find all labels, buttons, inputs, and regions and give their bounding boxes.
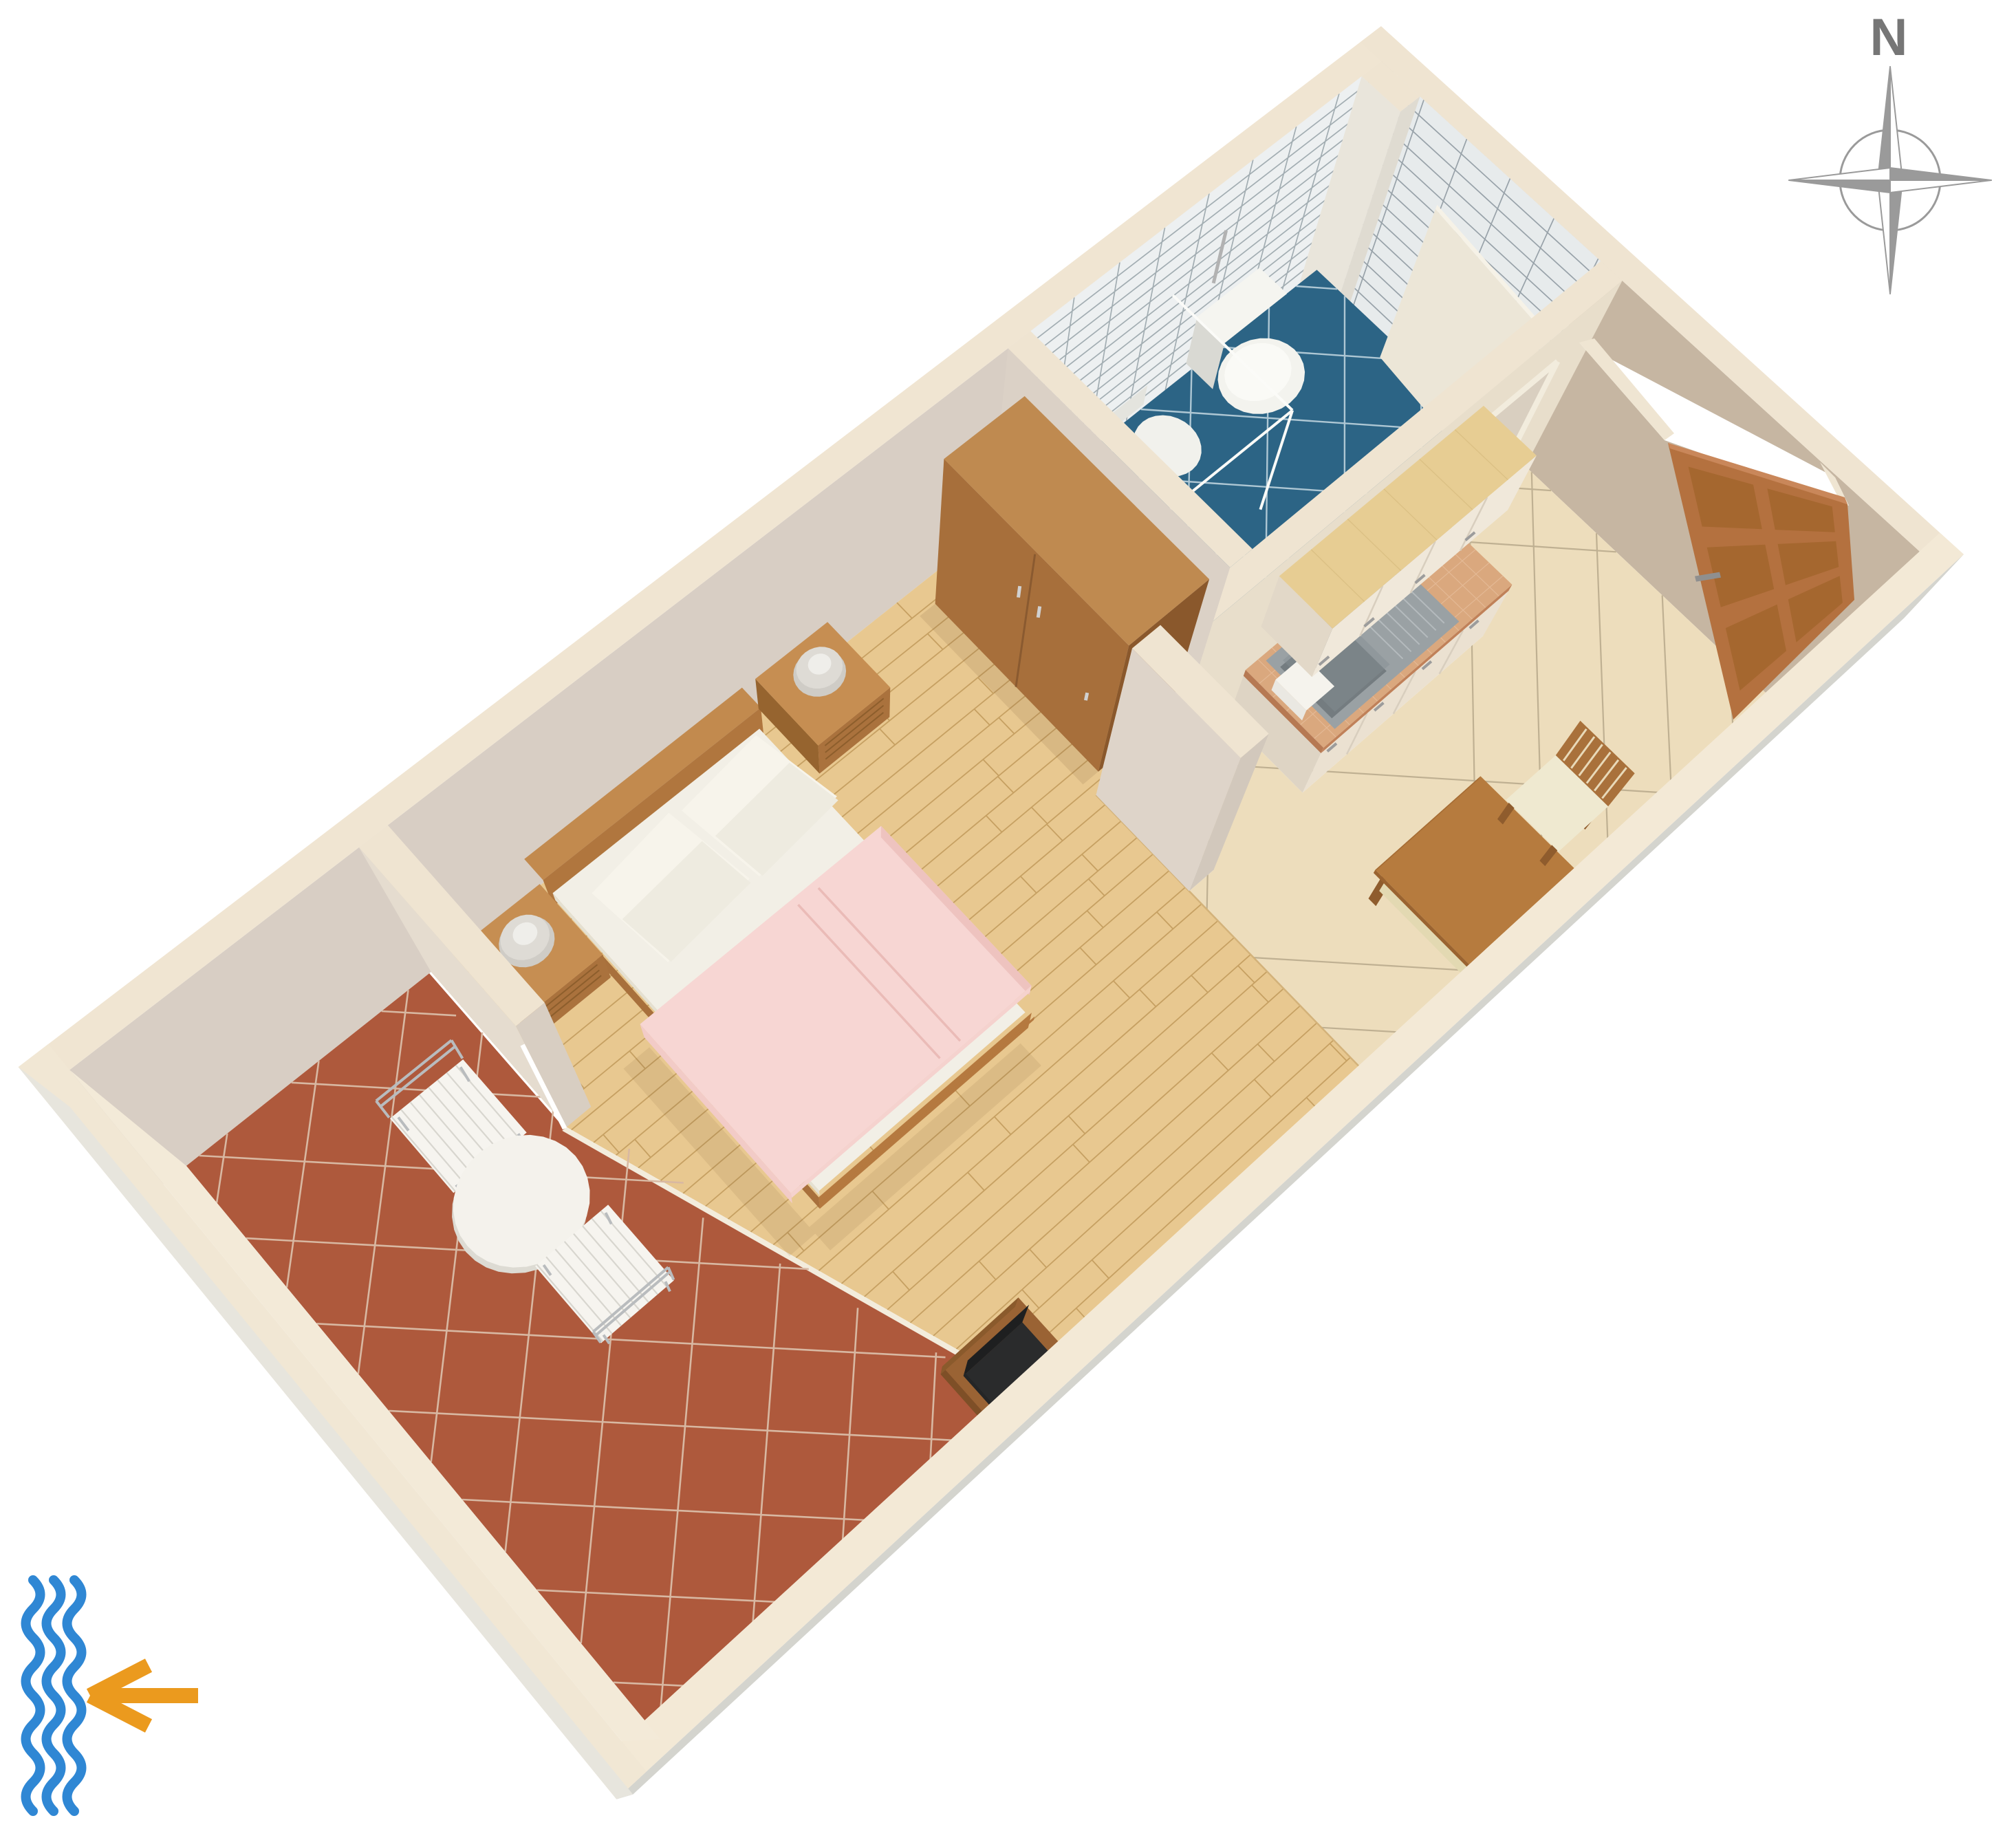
svg-text:N: N [1870, 8, 1908, 67]
